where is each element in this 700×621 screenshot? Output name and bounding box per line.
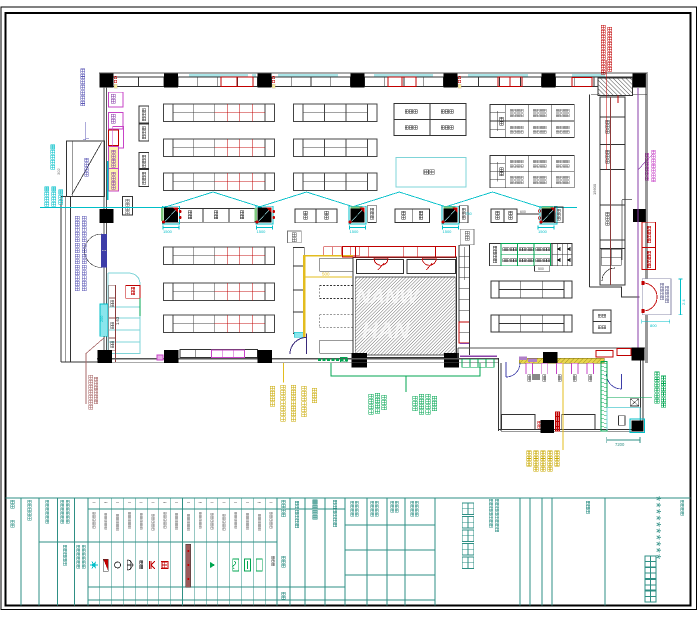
- svg-text:302: 302: [56, 168, 61, 175]
- svg-text:**********: **********: [649, 496, 664, 561]
- svg-text:HAN: HAN: [362, 318, 411, 343]
- svg-text:7200: 7200: [615, 442, 625, 447]
- svg-text:1.63: 1.63: [115, 316, 120, 325]
- svg-text:1500: 1500: [257, 229, 267, 234]
- svg-text:600: 600: [520, 210, 526, 214]
- svg-text:1500: 1500: [350, 229, 360, 234]
- svg-text:NANW: NANW: [356, 286, 420, 308]
- svg-text:1500: 1500: [538, 229, 548, 234]
- svg-text:500: 500: [538, 267, 544, 271]
- svg-text:500: 500: [322, 272, 330, 277]
- svg-text:750: 750: [465, 212, 471, 216]
- svg-text:1500: 1500: [163, 229, 173, 234]
- svg-text:1500: 1500: [443, 229, 453, 234]
- svg-text:15600: 15600: [592, 183, 597, 195]
- svg-text:800: 800: [650, 323, 657, 328]
- svg-text:2.4: 2.4: [681, 299, 686, 305]
- svg-text:200: 200: [100, 316, 104, 322]
